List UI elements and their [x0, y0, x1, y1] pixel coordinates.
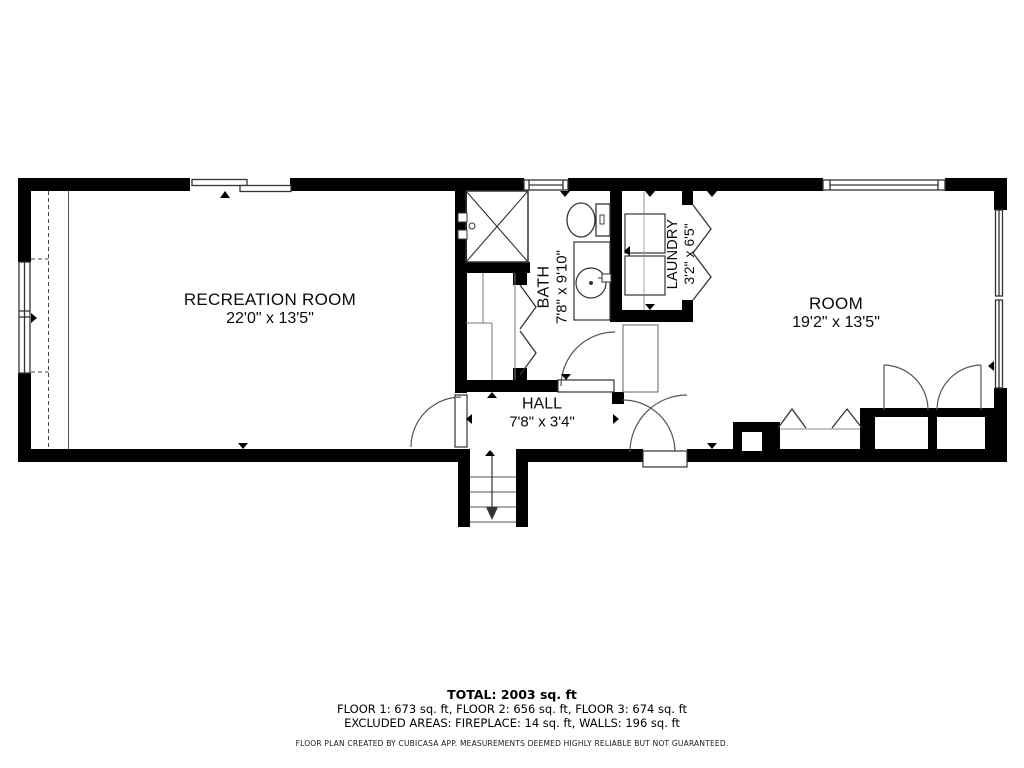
- measure-tick: [561, 374, 571, 380]
- room-dims: 22'0" x 13'5": [184, 310, 356, 328]
- excluded-areas: EXCLUDED AREAS: FIREPLACE: 14 sq. ft, WA…: [0, 716, 1024, 730]
- window-sliding-recroom: [192, 180, 291, 192]
- window-left-wall: [19, 262, 30, 373]
- label-laundry: LAUNDRY 3'2" x 6'5": [665, 219, 697, 289]
- room-name: RECREATION ROOM: [184, 290, 356, 310]
- measure-tick: [613, 414, 619, 424]
- closet-1: [875, 417, 928, 449]
- closet1-door-arc: [884, 365, 928, 410]
- washer: [625, 214, 665, 253]
- door-arc-recroom: [411, 397, 461, 447]
- window-room-top: [823, 180, 945, 190]
- room-name: LAUNDRY: [665, 219, 681, 289]
- room-name: HALL: [509, 396, 575, 414]
- measure-tick: [31, 313, 37, 323]
- room-dims: 7'8" x 3'4": [509, 414, 575, 431]
- bath-fixtures: [458, 191, 611, 320]
- toilet-tank: [596, 204, 610, 236]
- shower-knob: [469, 223, 475, 229]
- wall-bath-laundry: [610, 191, 622, 322]
- room-dims: 19'2" x 13'5": [792, 314, 880, 332]
- shower: [458, 191, 528, 262]
- toilet-bowl: [567, 203, 595, 237]
- sink-drain: [589, 281, 593, 285]
- wall-bath-hall: [455, 380, 558, 392]
- measure-tick: [238, 443, 248, 449]
- toilet: [567, 203, 610, 237]
- door-threshold-entry: [643, 451, 687, 467]
- closet-2: [937, 417, 985, 449]
- stair-wall-left: [458, 449, 470, 527]
- measure-tick: [220, 191, 230, 198]
- recroom-guides: [31, 191, 69, 449]
- shower-valve: [458, 230, 467, 239]
- stair-wall-right: [516, 449, 528, 527]
- door-leaf-bath: [558, 380, 614, 392]
- window-right-wall: [996, 210, 1003, 388]
- floor-plan-page: RECREATION ROOM 22'0" x 13'5" BATH 7'8" …: [0, 0, 1024, 768]
- label-hall: HALL 7'8" x 3'4": [509, 396, 575, 431]
- room-name: BATH: [536, 250, 554, 324]
- total-area: TOTAL: 2003 sq. ft: [0, 688, 1024, 702]
- bifold-bottom-closet: [832, 409, 862, 428]
- door-leaf-room: [623, 325, 658, 392]
- closet2-door-arc: [937, 365, 981, 410]
- measure-tick: [707, 443, 717, 449]
- disclaimer: FLOOR PLAN CREATED BY CUBICASA APP. MEAS…: [0, 739, 1024, 749]
- measure-tick: [560, 191, 570, 197]
- room-dims: 3'2" x 6'5": [681, 219, 697, 289]
- sink-vanity: [574, 242, 611, 320]
- measure-tick: [485, 450, 495, 456]
- bifold-bottom-closet: [778, 409, 806, 428]
- measure-tick: [988, 361, 994, 371]
- room-name: ROOM: [792, 294, 880, 314]
- floor-plan-drawing: [0, 0, 1024, 768]
- wall-laundry-south: [617, 310, 693, 322]
- window-bath: [524, 180, 568, 190]
- sink-faucet: [602, 274, 611, 282]
- area-summary: TOTAL: 2003 sq. ft FLOOR 1: 673 sq. ft, …: [0, 688, 1024, 749]
- wall-shower-closet: [455, 262, 530, 273]
- measure-tick: [707, 191, 717, 197]
- stairs-down: [470, 452, 516, 522]
- measure-tick: [645, 191, 655, 197]
- closet-organizer: [466, 273, 515, 380]
- measure-tick: [487, 392, 497, 398]
- interior-walls: [455, 191, 1007, 527]
- measure-tick: [645, 304, 655, 310]
- label-room: ROOM 19'2" x 13'5": [792, 294, 880, 332]
- room-dims: 7'8" x 9'10": [554, 250, 571, 324]
- stair-down-arrow: [486, 507, 498, 520]
- label-bath: BATH 7'8" x 9'10": [536, 250, 571, 324]
- door-arc-bath: [561, 332, 615, 386]
- laundry-fixtures: [625, 192, 665, 310]
- dryer: [625, 256, 665, 295]
- bifold-closet-west: [520, 285, 536, 329]
- door-arc-entry: [630, 395, 687, 452]
- label-recreation-room: RECREATION ROOM 22'0" x 13'5": [184, 290, 356, 328]
- shower-valve: [458, 213, 467, 222]
- door-leaf-recroom: [455, 395, 467, 447]
- floor-areas: FLOOR 1: 673 sq. ft, FLOOR 2: 656 sq. ft…: [0, 702, 1024, 716]
